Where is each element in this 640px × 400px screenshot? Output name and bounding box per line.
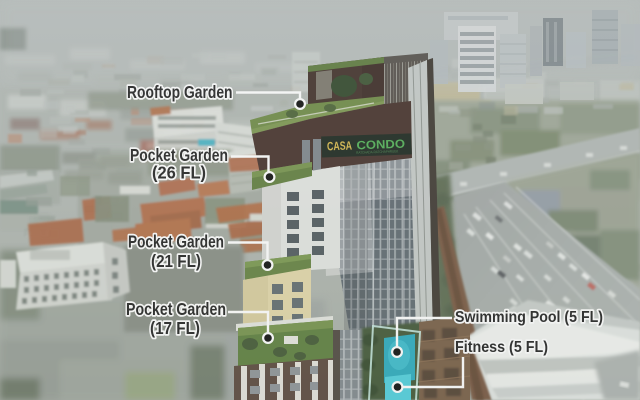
svg-text:(26 FL): (26 FL) — [152, 163, 206, 183]
svg-text:Pocket Garden: Pocket Garden — [126, 299, 226, 319]
svg-text:Pocket Garden: Pocket Garden — [128, 232, 224, 252]
svg-text:Rooftop Garden: Rooftop Garden — [127, 82, 233, 102]
svg-text:CASA: CASA — [327, 138, 353, 153]
svg-text:Swimming Pool (5 FL): Swimming Pool (5 FL) — [455, 309, 603, 326]
svg-text:(17 FL): (17 FL) — [150, 318, 200, 338]
svg-text:(21 FL): (21 FL) — [151, 251, 201, 271]
svg-text:Fitness (5 FL): Fitness (5 FL) — [455, 339, 548, 356]
